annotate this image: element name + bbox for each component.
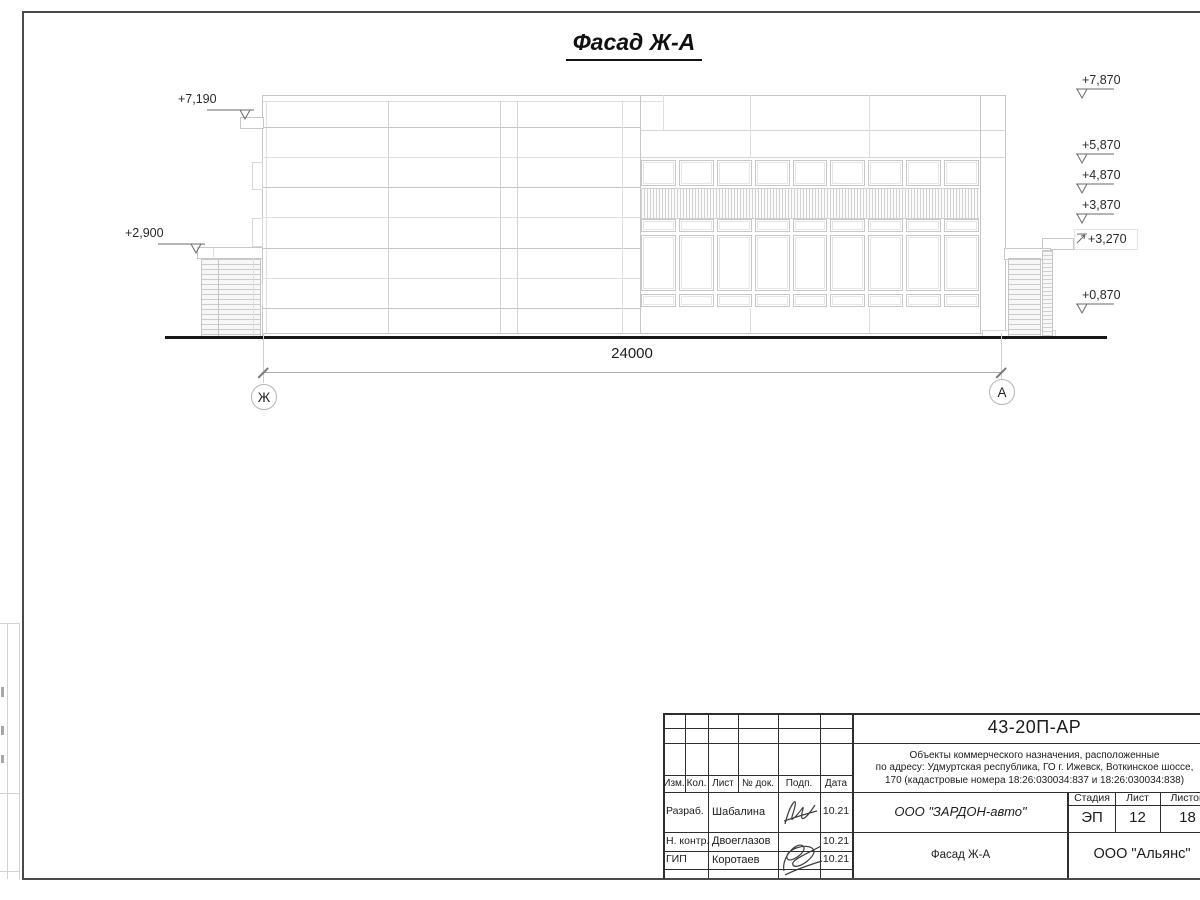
window-pane (755, 294, 790, 307)
floor-line (262, 127, 641, 128)
louver-block-right (1008, 258, 1041, 338)
name-gip: Коротаев (712, 851, 778, 869)
window-row-transom (641, 219, 979, 232)
elevation-mark: +0,870 (1082, 288, 1121, 302)
window-pane (830, 294, 865, 307)
window-pane (641, 235, 676, 291)
drawing-sheet: Фасад Ж-А (0, 0, 1200, 900)
floor-line (262, 187, 641, 188)
floor-line (262, 308, 641, 309)
elevation-mark: +4,870 (1082, 168, 1121, 182)
window-pane (641, 160, 676, 186)
window-row-lower-transom (641, 294, 979, 307)
window-pane (906, 219, 941, 232)
date-nkontr: 10.21 (820, 832, 852, 851)
window-pane (830, 235, 865, 291)
window-pane (906, 160, 941, 186)
louver-strip-right (1042, 250, 1053, 338)
col-header-doc: № док. (738, 775, 778, 792)
window-pane (755, 160, 790, 186)
customer-org: ООО "ЗАРДОН-авто" (854, 792, 1067, 832)
signature-nkontr-gip (779, 833, 823, 877)
col-header-kol: Кол. (685, 775, 708, 792)
window-pane (679, 235, 714, 291)
project-name-line: 170 (кадастровые номера 18:26:030034:837… (854, 775, 1200, 788)
window-pane (641, 219, 676, 232)
elevation-mark: +2,900 (125, 226, 164, 240)
mullion (388, 101, 389, 333)
sheets-header: Листов (1160, 792, 1200, 805)
window-pane (755, 219, 790, 232)
window-pane (793, 219, 828, 232)
window-pane (793, 235, 828, 291)
frame-top (22, 11, 1200, 13)
mullion (500, 101, 501, 333)
window-pane (868, 235, 903, 291)
role-razrab: Разраб. (666, 792, 708, 832)
project-name-line: Объекты коммерческого назначения, распол… (854, 750, 1200, 763)
window-pane (944, 160, 979, 186)
window-pane (717, 160, 752, 186)
axis-bubble-zh: Ж (251, 384, 277, 410)
window-pane (906, 294, 941, 307)
window-pane (830, 160, 865, 186)
col-header-data: Дата (820, 775, 852, 792)
sheet-value: 12 (1115, 805, 1160, 832)
window-pane (944, 294, 979, 307)
date-gip: 10.21 (820, 851, 852, 869)
window-pane (793, 294, 828, 307)
doc-number: 43-20П-АР (854, 713, 1200, 743)
window-row-upper (641, 160, 979, 186)
frame-left (22, 11, 24, 880)
window-pane (755, 235, 790, 291)
drawing-title: Фасад Ж-А (566, 29, 702, 61)
project-name-line: по адресу: Удмуртская республика, ГО г. … (854, 762, 1200, 775)
window-pane (679, 160, 714, 186)
axis-bubble-a: А (989, 379, 1015, 405)
window-pane (830, 219, 865, 232)
window-pane (679, 219, 714, 232)
window-pane (944, 235, 979, 291)
window-row-main (641, 235, 979, 291)
window-pane (679, 294, 714, 307)
stage-value: ЭП (1069, 805, 1115, 832)
window-pane (868, 219, 903, 232)
elevation-mark: +5,870 (1082, 138, 1121, 152)
louver-band (641, 188, 979, 219)
window-pane (641, 294, 676, 307)
name-nkontr: Двоеглазов (712, 832, 778, 851)
elevation-mark: +7,870 (1082, 73, 1121, 87)
elevation-mark: +7,190 (178, 92, 217, 106)
date-razrab: 10.21 (820, 792, 852, 832)
col-header-podp: Подп. (778, 775, 820, 792)
dimension-line (263, 372, 1001, 373)
axis-label: Ж (258, 390, 270, 405)
role-nkontr: Н. контр. (666, 832, 710, 851)
frame-bottom (22, 878, 1200, 880)
window-pane (906, 235, 941, 291)
sheets-value: 18 (1160, 805, 1200, 832)
window-pane (868, 294, 903, 307)
elevation-mark: +3,270 (1088, 232, 1127, 246)
sheet-title: Фасад Ж-А (854, 832, 1067, 878)
window-pane (717, 219, 752, 232)
project-name: Объекты коммерческого назначения, распол… (854, 745, 1200, 792)
roof-line (262, 95, 1006, 96)
window-pane (868, 160, 903, 186)
col-header-izm: Изм. (663, 775, 685, 792)
stage-header: Стадия (1069, 792, 1115, 805)
ground-line (165, 336, 1107, 339)
contractor-org: ООО "Альянс" (1069, 832, 1200, 878)
dimension-value: 24000 (600, 346, 664, 362)
name-razrab: Шабалина (712, 792, 778, 832)
window-pane (793, 160, 828, 186)
col-header-list: Лист (708, 775, 738, 792)
signature-razrab (781, 794, 819, 831)
axis-label: А (997, 385, 1006, 400)
louver-block-left (201, 258, 261, 339)
wall-right (1005, 95, 1006, 340)
sheet-header: Лист (1115, 792, 1160, 805)
window-pane (944, 219, 979, 232)
window-pane (717, 235, 752, 291)
role-gip: ГИП (666, 851, 710, 869)
floor-line (262, 248, 641, 249)
window-pane (717, 294, 752, 307)
elevation-mark: +3,870 (1082, 198, 1121, 212)
